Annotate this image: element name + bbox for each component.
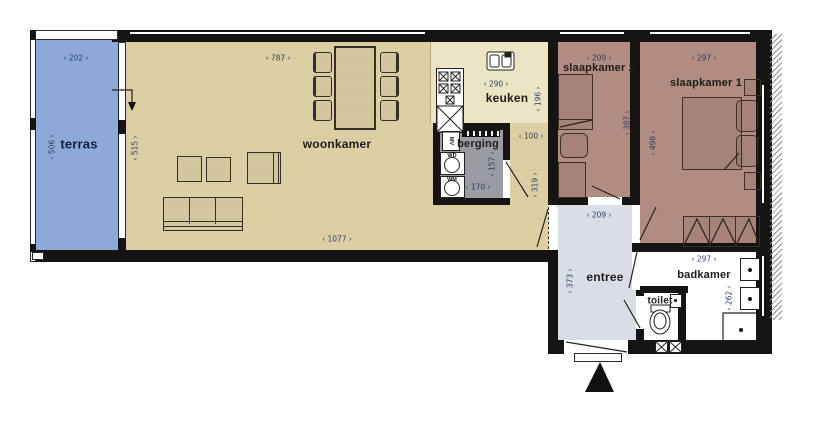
window-line-right [762,256,764,316]
label-terras: terras [60,137,97,152]
dim-slaapkamer2-width: ‹ 209 › [586,54,611,63]
dim-gang-height: ‹ 319 › [531,172,540,197]
pillow [736,100,758,132]
chair [313,52,332,73]
pillow [736,135,758,167]
label-toilet: toilet [647,296,672,307]
dim-entree-height: ‹ 373 › [566,268,575,293]
dim-berging-width: ‹ 170 › [465,183,490,192]
window-terrace-woonkamer [118,42,126,250]
wall-slaapkamer2-slaapkamer1 [630,30,640,205]
terrace-railing-top [34,30,118,40]
bed-footboard [559,119,592,129]
chair [313,76,332,97]
dim-gang-width: ‹ 100 › [518,132,543,141]
ottoman [177,156,202,182]
armchair [247,152,281,184]
dim-slaapkamer1-height: ‹ 498 › [649,130,658,155]
label-slaapkamer-1: slaapkamer 1 [670,77,742,89]
cabinet-slaapkamer2 [558,162,586,198]
sofa [163,197,243,231]
sofa-backrest [164,221,242,227]
window-mullion [118,238,126,250]
terrace-railing-left [30,30,36,262]
dim-terras-height: ‹ 506 › [48,134,57,159]
bed-slaapkamer1 [682,97,742,170]
facade-hatching [770,34,782,320]
label-wd: WD [447,153,456,159]
dim-slaapkamer1-width: ‹ 297 › [691,54,716,63]
kitchen-counter [436,68,464,133]
dim-keuken-width: ‹ 290 › [483,80,508,89]
label-berging: berging [457,138,499,150]
chair [380,52,399,73]
label-entree: entree [586,270,623,284]
label-mv: MV [448,137,454,145]
label-slaapkamer-2: slaapkamer 2 [563,62,635,74]
chair [313,100,332,121]
window-mullion [118,120,126,134]
wall-entree-left [548,250,558,354]
armchair-backrest [273,153,279,183]
window-line-right [762,85,764,203]
wall-slaapkamer2-entree-a [548,197,588,205]
wall-bottom-west [30,250,558,262]
seat-slaapkamer2 [560,133,588,158]
door-opening-berging [503,160,510,198]
dryer-drum [444,157,460,173]
chair [380,100,399,121]
nightstand [744,172,761,190]
door-opening-slaapkamer2 [588,197,622,205]
sink-drain [748,268,752,272]
dim-slaapkamer2-height: ‹ 387 › [623,110,632,135]
front-door-threshold [574,353,622,362]
duct-box [655,341,668,353]
wardrobe-divider [709,217,710,246]
dim-terras-width: ‹ 202 › [63,54,88,63]
sink-drain [748,297,752,301]
window-line-top [560,32,624,34]
floorplan: terras woonkamer keuken berging slaapkam… [0,0,834,424]
dim-badkamer-height: ‹ 262 › [725,285,734,310]
front-door-opening [564,340,628,354]
bed-slaapkamer2 [558,74,593,130]
dim-berging-height: ‹ 157 › [488,151,497,176]
wall-woonkamer-slaapkamer2 [548,30,558,205]
nightstand [744,79,761,96]
wall-slaapkamer2-entree-b [622,197,640,205]
door-opening-badkamer [632,252,640,290]
dim-badkamer-width: ‹ 297 › [691,255,716,264]
railing-corner-box [32,252,44,260]
chair [380,76,399,97]
dining-table [334,46,376,130]
vent-grille [462,130,500,137]
door-opening-toilet [636,296,644,329]
window-line-top [130,32,425,34]
dim-entree-width: ‹ 209 › [586,211,611,220]
label-woonkamer: woonkamer [303,137,372,151]
duct-box [669,341,682,353]
railing-post [30,30,36,40]
label-badkamer: badkamer [677,269,731,281]
label-wm: WM [447,177,457,183]
wardrobe-divider [735,217,736,246]
wardrobe [683,216,760,247]
basin-drain [674,299,677,302]
ottoman [206,157,231,182]
dim-woonkamer-height: ‹ 515 › [131,135,140,160]
door-opening-woonkamer-entree [548,207,558,249]
dim-keuken-height: ‹ 196 › [534,86,543,111]
railing-post [30,244,36,252]
label-keuken: keuken [486,91,529,105]
entrance-marker-triangle [585,362,614,392]
door-opening-slaapkamer1 [632,205,640,243]
dim-woonkamer-total-width: ‹ 1077 › [322,235,352,244]
window-line-top [650,32,750,34]
railing-post [30,118,36,130]
dim-woonkamer-width: ‹ 787 › [265,54,290,63]
